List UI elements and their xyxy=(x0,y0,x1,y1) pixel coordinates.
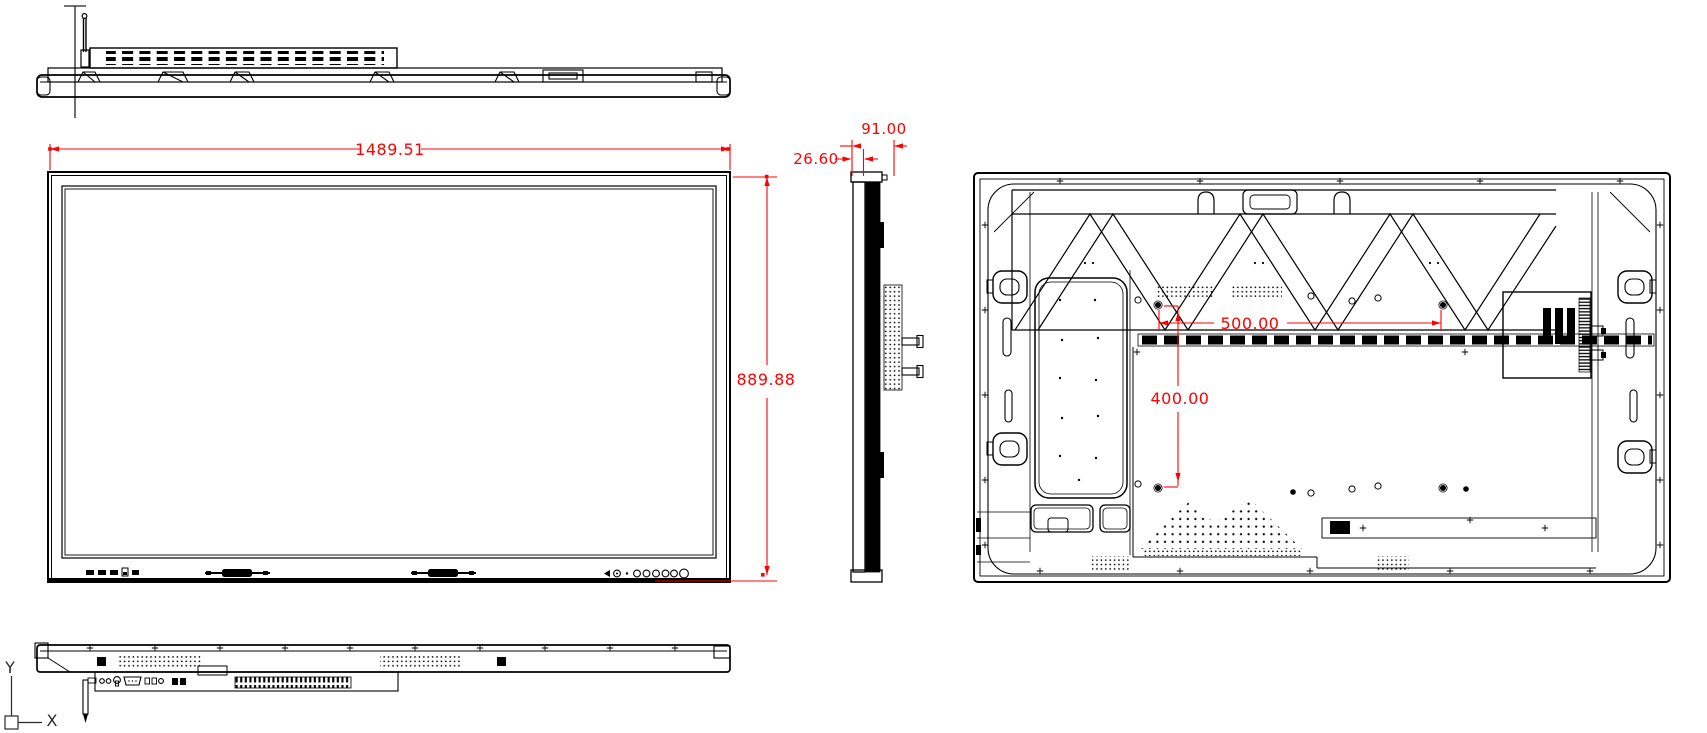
bottom-speaker-right xyxy=(380,654,462,668)
technical-drawing-canvas: 1489.51 xyxy=(0,0,1707,733)
back-vent-mountain xyxy=(1138,499,1302,549)
dimension-total-depth-label: 91.00 xyxy=(861,120,906,138)
back-vent-dots-right xyxy=(1232,284,1282,297)
front-control-buttons xyxy=(604,569,688,578)
side-mount-plate xyxy=(884,285,902,390)
back-ops-panel xyxy=(1035,278,1127,498)
dimension-bezel-depth: 26.60 xyxy=(793,140,878,176)
front-screen xyxy=(65,189,713,555)
back-handle-cutout xyxy=(1243,190,1297,214)
back-view xyxy=(974,173,1670,582)
axis-x-label: X xyxy=(47,711,58,730)
dimension-overall-width-label: 1489.51 xyxy=(355,140,425,159)
antenna xyxy=(81,14,89,67)
dimension-bezel-depth-label: 26.60 xyxy=(793,150,838,168)
back-right-column xyxy=(1618,271,1656,473)
back-left-column xyxy=(976,271,1130,562)
dimension-overall-width: 1489.51 xyxy=(48,140,730,170)
front-bottom-edge xyxy=(48,578,730,583)
front-view xyxy=(48,172,730,583)
top-vent-box xyxy=(90,48,397,68)
drawing-svg: 1489.51 xyxy=(0,0,1707,733)
back-vent-strip xyxy=(1138,334,1654,346)
back-inner-panel xyxy=(988,184,1656,574)
ir-arrow-icon xyxy=(604,570,610,577)
port-bar xyxy=(1555,308,1563,344)
dimension-total-depth: 91.00 xyxy=(840,120,907,176)
dimension-overall-height-label: 889.88 xyxy=(737,370,796,389)
back-speaker-left xyxy=(1092,556,1129,572)
axis-y-label: Y xyxy=(4,658,15,677)
truss-hook-left xyxy=(1198,192,1214,214)
bottom-view xyxy=(35,643,730,723)
port-bar xyxy=(1567,308,1575,344)
front-pen-tray-right xyxy=(411,569,476,577)
side-wall-hooks xyxy=(902,336,923,378)
back-screws xyxy=(982,178,1663,574)
back-truss xyxy=(1012,190,1556,330)
side-back-body xyxy=(866,182,880,572)
front-bezel-squares xyxy=(86,568,139,576)
port-bar xyxy=(1543,308,1551,344)
top-feet xyxy=(78,70,712,82)
power-jack-icon xyxy=(114,677,121,684)
front-screen-outer xyxy=(62,186,716,558)
back-bottom-bay xyxy=(1322,517,1596,538)
dimension-overall-height: 889.88 xyxy=(655,175,795,581)
top-view xyxy=(37,14,730,97)
side-view xyxy=(851,172,923,582)
back-vent-dots-left xyxy=(1155,284,1213,297)
truss-hook-right xyxy=(1334,192,1350,214)
dimension-vesa-width-label: 500.00 xyxy=(1221,314,1280,333)
dimension-vesa-height-label: 400.00 xyxy=(1151,389,1210,408)
top-axis-marker xyxy=(64,6,86,118)
bottom-vent-slot xyxy=(235,677,351,688)
back-port-module xyxy=(1503,292,1606,378)
side-panel-slab xyxy=(853,182,865,572)
stylus-pen xyxy=(83,678,96,723)
bottom-speaker-left xyxy=(118,654,202,668)
dimension-vesa-height: 400.00 xyxy=(1151,306,1210,487)
front-pen-tray-left xyxy=(205,569,270,577)
back-speaker-right xyxy=(1376,556,1409,572)
origin-axis-marker: Y X xyxy=(4,658,57,730)
bottom-connector-strip xyxy=(95,666,398,691)
